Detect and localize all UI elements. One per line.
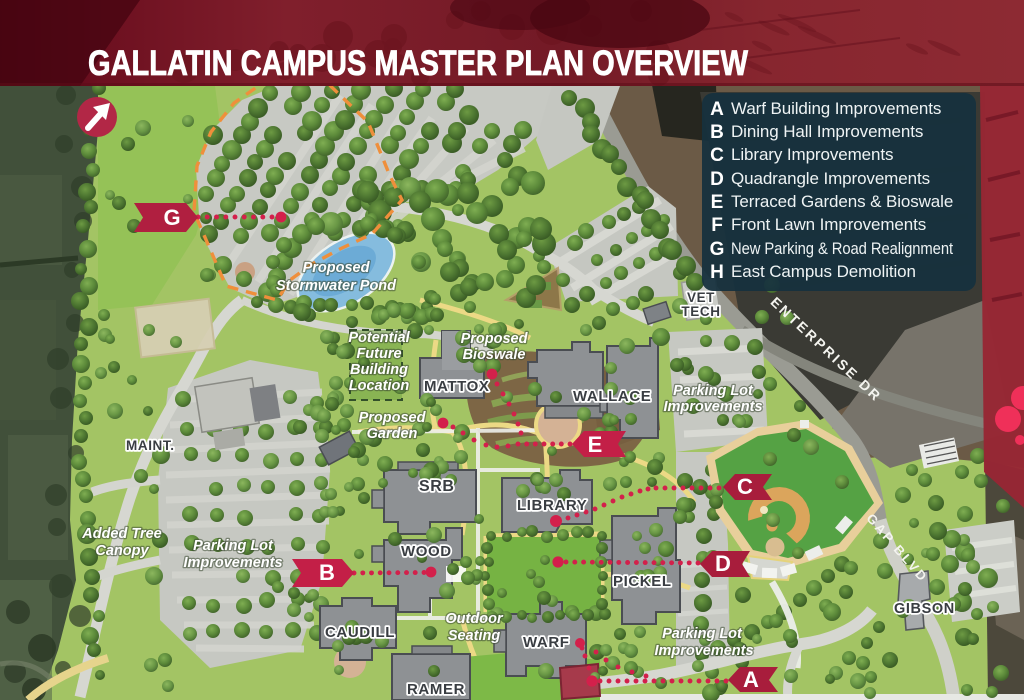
- svg-text:C: C: [737, 474, 753, 499]
- svg-text:Improvements: Improvements: [183, 555, 282, 571]
- svg-text:Parking Lot: Parking Lot: [673, 383, 754, 399]
- svg-text:Future: Future: [356, 346, 401, 362]
- svg-text:Location: Location: [349, 378, 410, 394]
- svg-text:New Parking & Road Realignment: New Parking & Road Realignment: [731, 239, 953, 258]
- svg-text:WALLACE: WALLACE: [573, 388, 651, 405]
- svg-text:Improvements: Improvements: [663, 399, 762, 415]
- svg-text:East Campus Demolition: East Campus Demolition: [731, 262, 916, 281]
- svg-text:D: D: [715, 551, 731, 576]
- svg-text:GIBSON: GIBSON: [894, 601, 955, 617]
- svg-text:E: E: [711, 192, 724, 213]
- svg-text:C: C: [710, 145, 724, 166]
- svg-text:PICKEL: PICKEL: [613, 573, 672, 590]
- svg-text:Added Tree: Added Tree: [81, 526, 162, 542]
- svg-text:Stormwater Pond: Stormwater Pond: [276, 278, 397, 294]
- svg-text:Quadrangle Improvements: Quadrangle Improvements: [731, 169, 930, 188]
- svg-text:A: A: [710, 99, 724, 120]
- svg-text:SRB: SRB: [419, 478, 455, 495]
- svg-text:B: B: [319, 560, 335, 585]
- svg-text:A: A: [743, 667, 759, 692]
- svg-text:Terraced Gardens & Bioswale: Terraced Gardens & Bioswale: [731, 192, 953, 211]
- svg-text:GALLATIN CAMPUS MASTER PLAN OV: GALLATIN CAMPUS MASTER PLAN OVERVIEW: [88, 44, 748, 83]
- svg-text:MAINT.: MAINT.: [126, 438, 175, 453]
- svg-text:Front Lawn Improvements: Front Lawn Improvements: [731, 215, 926, 234]
- svg-text:WOOD: WOOD: [401, 543, 452, 560]
- svg-text:Proposed: Proposed: [359, 410, 427, 426]
- svg-text:Dining Hall Improvements: Dining Hall Improvements: [731, 122, 923, 141]
- svg-text:VET: VET: [687, 290, 715, 305]
- svg-text:F: F: [711, 215, 723, 236]
- svg-text:CAUDILL: CAUDILL: [325, 624, 395, 641]
- svg-text:RAMER: RAMER: [407, 681, 465, 698]
- svg-text:MATTOX: MATTOX: [424, 378, 490, 395]
- svg-text:Canopy: Canopy: [95, 543, 149, 559]
- svg-text:Parking Lot: Parking Lot: [662, 626, 743, 642]
- svg-text:D: D: [710, 169, 724, 190]
- svg-text:WARF: WARF: [523, 634, 570, 651]
- svg-text:Bioswale: Bioswale: [463, 347, 526, 363]
- svg-text:G: G: [710, 239, 725, 260]
- svg-text:LIBRARY: LIBRARY: [517, 497, 587, 514]
- svg-text:Garden: Garden: [367, 426, 418, 442]
- svg-text:Improvements: Improvements: [654, 643, 753, 659]
- svg-text:G: G: [163, 205, 180, 230]
- svg-text:Potential: Potential: [348, 330, 410, 346]
- svg-text:Seating: Seating: [448, 628, 501, 644]
- svg-text:Proposed: Proposed: [461, 331, 529, 347]
- svg-text:B: B: [710, 122, 724, 143]
- svg-text:H: H: [710, 262, 724, 283]
- svg-text:E: E: [588, 432, 603, 457]
- svg-text:Proposed: Proposed: [303, 260, 371, 276]
- svg-text:Warf Building Improvements: Warf Building Improvements: [731, 99, 941, 118]
- svg-text:TECH: TECH: [681, 304, 720, 319]
- svg-text:Parking Lot: Parking Lot: [193, 538, 274, 554]
- svg-text:Building: Building: [350, 362, 408, 378]
- svg-text:Outdoor: Outdoor: [445, 611, 504, 627]
- svg-text:Library Improvements: Library Improvements: [731, 145, 893, 164]
